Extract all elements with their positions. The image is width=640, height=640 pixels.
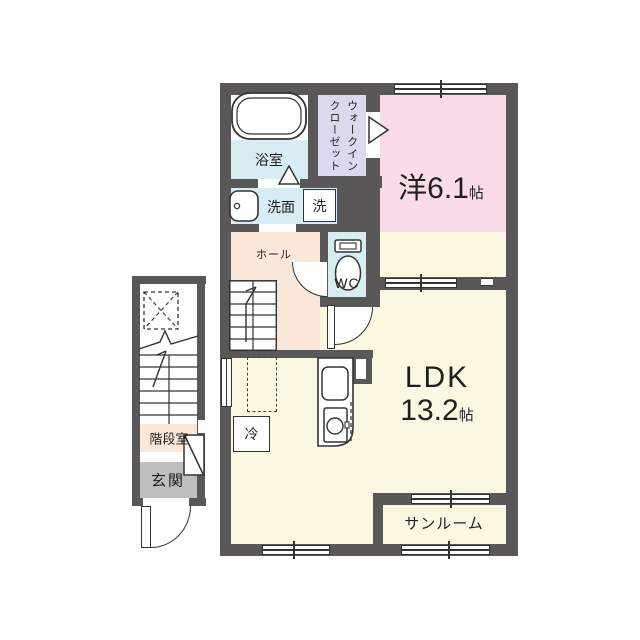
bedroom-north-window <box>394 84 487 94</box>
ldk-south-window <box>262 545 330 555</box>
annex-stairs-icon <box>139 283 199 428</box>
entrance-door-arc <box>151 506 191 548</box>
stairwell-label: 階段室 <box>149 429 188 448</box>
stairs-headroom-dashed-line <box>276 281 277 350</box>
laundry-label: 洗 <box>313 196 327 216</box>
washroom-hall-opening <box>259 224 296 232</box>
sunroom-south-window <box>401 545 490 555</box>
wic-label-line1: ウォークイン <box>342 100 360 172</box>
bedroom-ldk-sliding-door <box>385 278 457 288</box>
ldk-unit: 帖 <box>459 407 474 424</box>
sunroom-label: サンルーム <box>404 513 484 534</box>
wall-east <box>506 83 518 556</box>
wall-bath-wic <box>308 95 318 180</box>
walk-in-closet-label: ウォークイン クローゼット <box>318 95 366 176</box>
ldk-area: 13.2 <box>400 394 458 427</box>
hall-stairs-icon <box>229 280 278 359</box>
entrance-label: 玄関 <box>151 470 185 491</box>
wall-wic-east-2 <box>366 158 380 176</box>
wall-bath-south-1 <box>231 179 258 188</box>
refrigerator-label: 冷 <box>245 424 259 444</box>
hall-label: ホール <box>256 246 292 262</box>
bath-label: 浴室 <box>255 150 283 170</box>
ldk-west-window <box>221 358 232 407</box>
wall-washroom-south-1 <box>231 224 259 232</box>
sunroom-north-window <box>411 494 490 504</box>
laundry-space: 洗 <box>303 189 336 222</box>
western-room-label: 洋6.1帖 <box>398 165 484 207</box>
refrigerator-space: 冷 <box>233 416 270 452</box>
bathtub-icon <box>230 91 308 141</box>
ldk-name: LDK <box>400 361 473 394</box>
ldk-label: LDK 13.2帖 <box>400 361 473 427</box>
hall-ldk-door-leaf <box>327 305 335 349</box>
entrance-door-leaf <box>141 506 151 548</box>
under-stairs-dashed-area <box>247 357 277 412</box>
washbasin-icon <box>228 189 260 223</box>
bedroom-south-vent <box>481 278 493 286</box>
annex-east-window <box>198 420 205 433</box>
entrance-door-opening <box>143 498 189 506</box>
washroom-label: 洗面 <box>267 197 295 217</box>
kitchen-counter-icon <box>316 356 356 450</box>
wc-label: WC <box>334 275 359 291</box>
kitchen-pass-slot <box>356 359 366 379</box>
western-room-unit: 帖 <box>469 182 484 203</box>
wic-door-arrow-icon <box>367 112 391 148</box>
western-room-area: 6.1 <box>427 172 469 206</box>
floor-plan: 冷 洗 浴室 ウォークイン クローゼット 洗面 WC ホール 洋6.1帖 LDK… <box>0 0 640 640</box>
western-room-name: 洋 <box>398 165 427 207</box>
wall-sunroom-west <box>373 493 383 556</box>
wall-wic-east-1 <box>366 95 380 112</box>
wic-label-line2: クローゼット <box>324 100 342 172</box>
